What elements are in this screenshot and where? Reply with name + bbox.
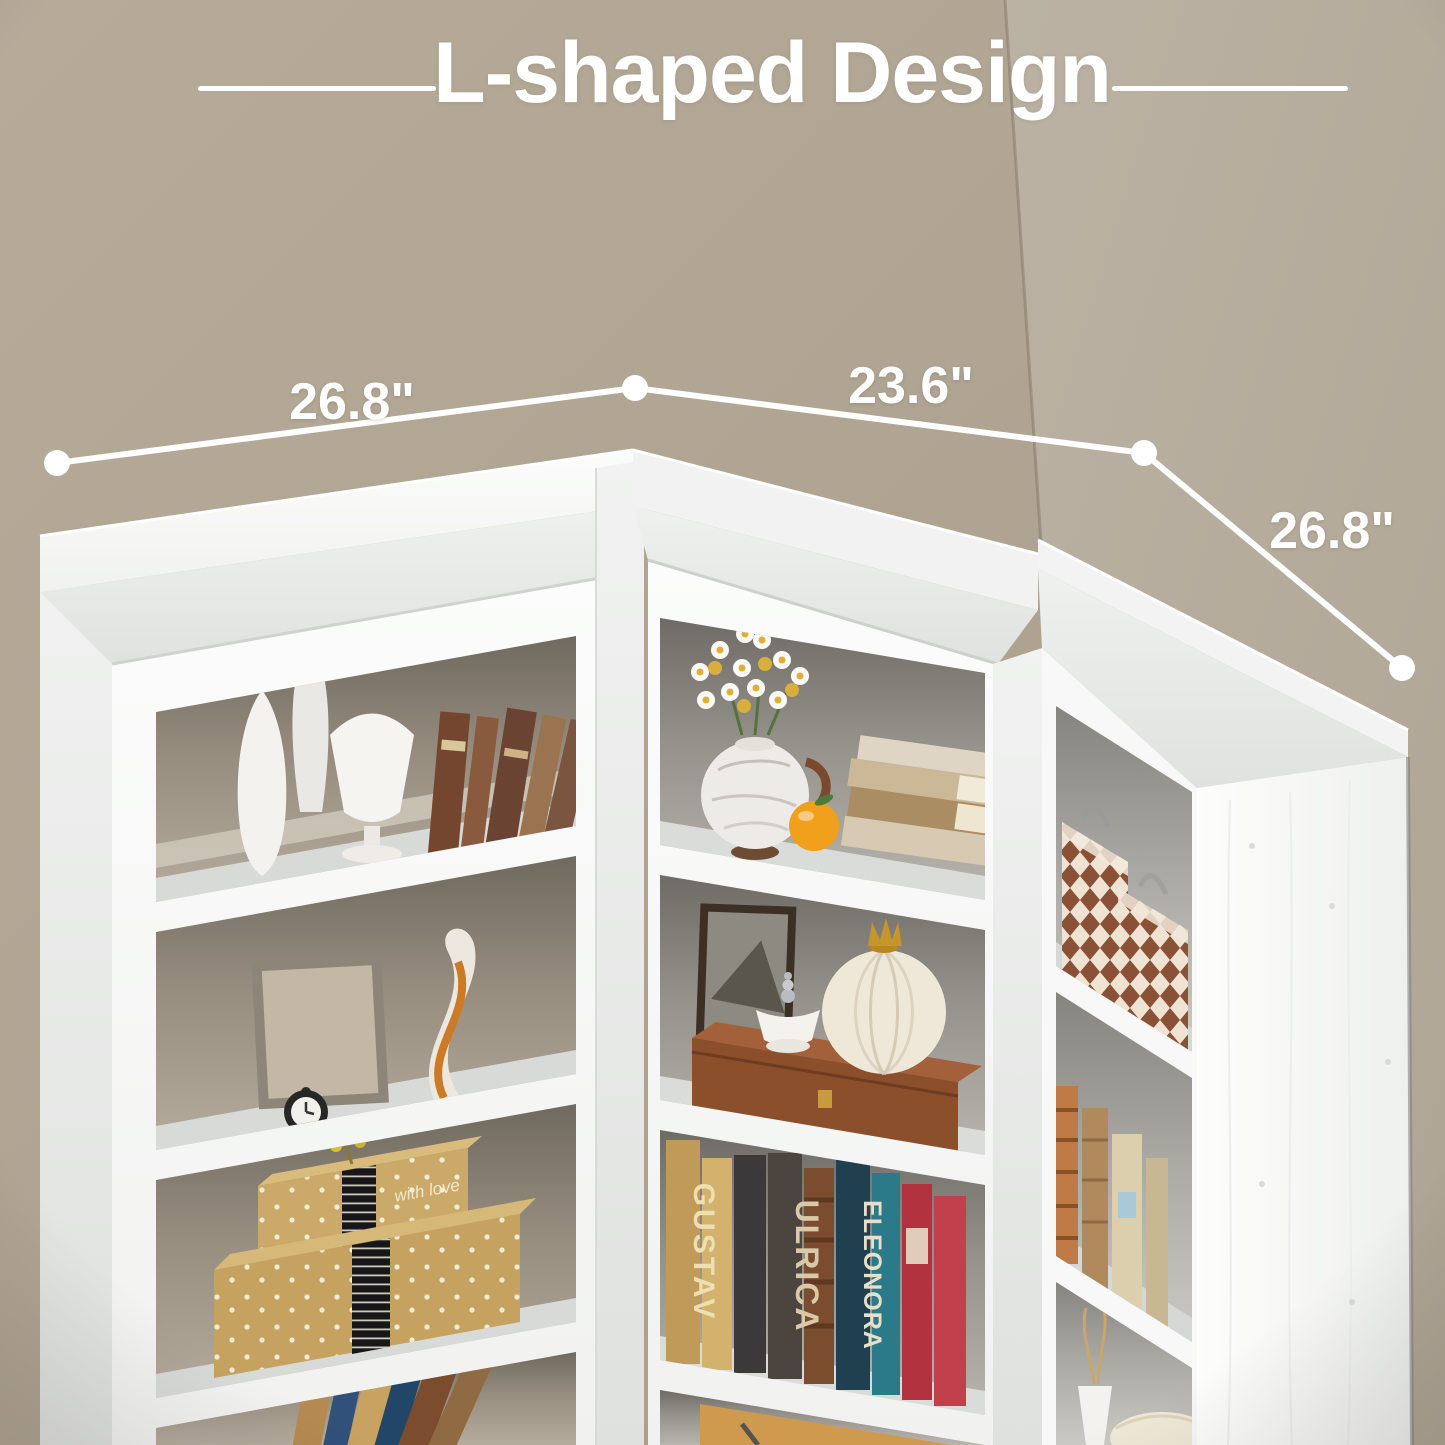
dimension-endpoint-dot	[622, 375, 648, 401]
page-title: L-shaped Design	[433, 24, 1111, 123]
title-divider-right	[1112, 86, 1348, 91]
scene-illustration: with love	[0, 0, 1445, 1445]
dimension-endpoint-dot	[44, 450, 70, 476]
dimension-endpoint-dot	[1131, 440, 1157, 466]
dimension-label-right-side: 26.8"	[1269, 501, 1395, 561]
photo-vignette	[0, 0, 1445, 1445]
dimension-label-left-top: 26.8"	[289, 372, 415, 432]
dimension-endpoint-dot	[1389, 655, 1415, 681]
title-divider-left	[198, 86, 436, 91]
dimension-label-back-top: 23.6"	[848, 356, 974, 416]
product-showcase-image: with love	[0, 0, 1445, 1445]
